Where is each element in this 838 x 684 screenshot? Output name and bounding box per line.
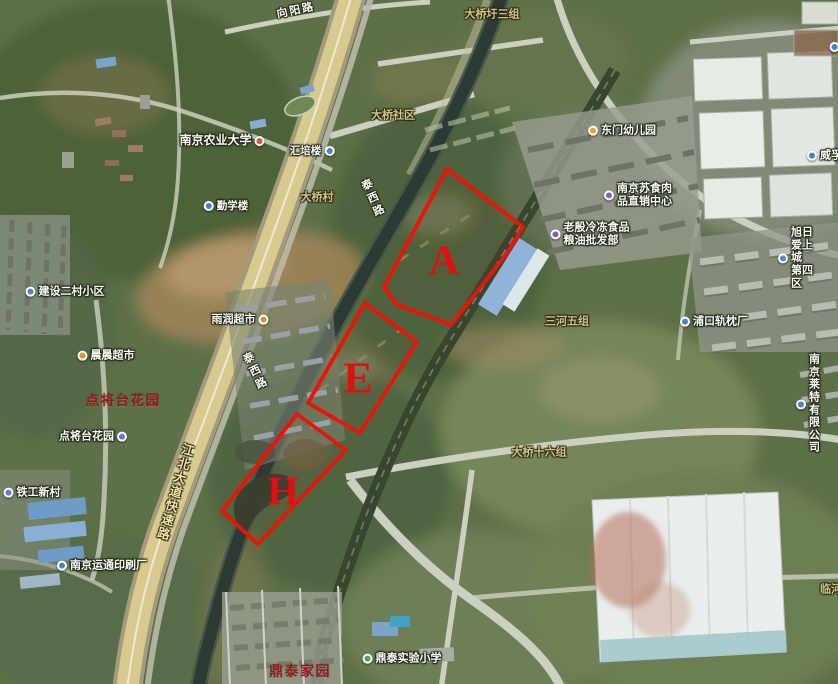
sushi-meat-center-label[interactable]: 南京苏食肉 品直销中心 bbox=[604, 182, 672, 207]
map-label-text: 大桥社区 bbox=[371, 110, 415, 123]
xuri-aishangcheng-district4-label[interactable]: 旭日爱上城 第四区 bbox=[778, 226, 818, 289]
building-poi-icon bbox=[204, 201, 214, 211]
yurun-supermarket-label[interactable]: 雨润超市 bbox=[212, 314, 269, 327]
laoyin-frozen-food-label[interactable]: 老殷冷冻食品 粮油批发部 bbox=[551, 221, 630, 246]
map-label-text: 南京苏食肉 品直销中心 bbox=[617, 182, 672, 207]
linhe-label: 临河 bbox=[820, 584, 838, 597]
taixi-road-label-1: 泰西路 bbox=[358, 178, 385, 221]
daqiao-village-label: 大桥村 bbox=[301, 192, 334, 205]
school-poi-icon bbox=[363, 654, 373, 664]
company-poi-icon bbox=[796, 399, 806, 409]
xiangyang-road-label: 向阳路 bbox=[276, 1, 317, 21]
dongmen-kindergarten-label[interactable]: 东门幼儿园 bbox=[588, 125, 656, 138]
pukou-sleeper-factory-label[interactable]: 浦口轨枕厂 bbox=[680, 316, 748, 329]
building-poi-icon bbox=[324, 146, 334, 156]
poi-icon bbox=[830, 42, 838, 52]
map-screenshot: A E H 向阳路 大桥圩三组 大桥社区 南京农业大学 汇培楼 勤学楼 bbox=[0, 0, 838, 684]
dingtai-homeland-label: 鼎泰家园 bbox=[269, 663, 331, 679]
map-label-text: 临河 bbox=[820, 584, 838, 597]
factory-poi-icon bbox=[57, 561, 67, 571]
map-label-text: 南京农业大学 bbox=[179, 134, 251, 148]
dianjiangtai-garden-area-label: 点将台花园 bbox=[86, 393, 161, 409]
supermarket-poi-icon bbox=[78, 351, 88, 361]
taixi-road-label-2: 泰西路 bbox=[240, 351, 268, 394]
jianshe-ercun-label[interactable]: 建设二村小区 bbox=[26, 286, 105, 299]
residence-poi-icon bbox=[4, 488, 14, 498]
map-label-text: 东门幼儿园 bbox=[601, 125, 656, 138]
nanjing-laite-company-label[interactable]: 南京莱特 有限公司 bbox=[796, 353, 824, 454]
map-label-text: 晨晨超市 bbox=[91, 350, 135, 363]
map-label-text: 南京莱特 有限公司 bbox=[809, 353, 824, 454]
map-label-text: 大桥十六组 bbox=[512, 447, 567, 460]
map-label-text: 浦口轨枕厂 bbox=[693, 316, 748, 329]
map-label-text: 威孚金 bbox=[820, 150, 838, 163]
residence-poi-icon bbox=[26, 287, 36, 297]
map-label-text: 建设二村小区 bbox=[39, 286, 105, 299]
map-label-text: 大桥圩三组 bbox=[465, 9, 520, 22]
yuntong-printing-label[interactable]: 南京运通印刷厂 bbox=[57, 560, 147, 573]
daqiao-community-label: 大桥社区 bbox=[371, 110, 415, 123]
supermarket-poi-icon bbox=[259, 315, 269, 325]
map-label-text: 鼎泰家园 bbox=[269, 663, 331, 679]
company-poi-icon bbox=[807, 151, 817, 161]
map-label-text: 点将台花园 bbox=[86, 393, 161, 409]
dianjiangtai-garden-poi-label[interactable]: 点将台花园 bbox=[59, 431, 127, 444]
map-label-text: 向阳路 bbox=[276, 1, 317, 21]
daqiao-group16-label: 大桥十六组 bbox=[512, 447, 567, 460]
labels-layer: 向阳路 大桥圩三组 大桥社区 南京农业大学 汇培楼 勤学楼 大桥村 泰西路 泰西… bbox=[0, 0, 838, 684]
sanhe-group5-label: 三河五组 bbox=[545, 316, 589, 329]
map-label-text: 旭日爱上城 第四区 bbox=[791, 226, 818, 289]
nanjing-agricultural-university-label[interactable]: 南京农业大学 bbox=[179, 134, 264, 148]
map-label-text: 三河五组 bbox=[545, 316, 589, 329]
map-label-text: 鼎泰实验小学 bbox=[376, 653, 442, 666]
chenchen-supermarket-label[interactable]: 晨晨超市 bbox=[78, 350, 135, 363]
map-label-text: 大桥村 bbox=[301, 192, 334, 205]
map-label-text: 江北大道快速路 bbox=[154, 441, 194, 542]
map-label-text: 勤学楼 bbox=[217, 200, 249, 212]
kindergarten-poi-icon bbox=[588, 126, 598, 136]
map-label-text: 汇培楼 bbox=[290, 145, 322, 157]
daqiaowei-group3-label: 大桥圩三组 bbox=[465, 9, 520, 22]
map-label-text: 点将台花园 bbox=[59, 431, 114, 444]
map-label-text: 老殷冷冻食品 粮油批发部 bbox=[564, 221, 630, 246]
weifu-label[interactable]: 威孚金 bbox=[807, 150, 838, 163]
map-label-text: 泰西路 bbox=[240, 351, 268, 394]
residence-poi-icon bbox=[117, 432, 127, 442]
tiegong-xincun-label[interactable]: 铁工新村 bbox=[4, 487, 61, 500]
factory-poi-icon bbox=[680, 317, 690, 327]
map-label-text: 雨润超市 bbox=[212, 314, 256, 327]
clipped-poi-label[interactable] bbox=[830, 42, 838, 52]
map-label-text: 铁工新村 bbox=[17, 487, 61, 500]
map-label-text: 南京运通印刷厂 bbox=[70, 560, 147, 573]
qinxue-building-label[interactable]: 勤学楼 bbox=[204, 200, 249, 212]
shop-poi-icon bbox=[551, 229, 561, 239]
jiangbei-avenue-expressway-label: 江北大道快速路 bbox=[154, 441, 194, 542]
huipei-building-label[interactable]: 汇培楼 bbox=[290, 145, 335, 157]
map-label-text: 泰西路 bbox=[358, 178, 385, 221]
shop-poi-icon bbox=[604, 190, 614, 200]
dingtai-experimental-school-label[interactable]: 鼎泰实验小学 bbox=[363, 653, 442, 666]
university-poi-icon bbox=[255, 136, 265, 146]
residence-poi-icon bbox=[778, 253, 788, 263]
